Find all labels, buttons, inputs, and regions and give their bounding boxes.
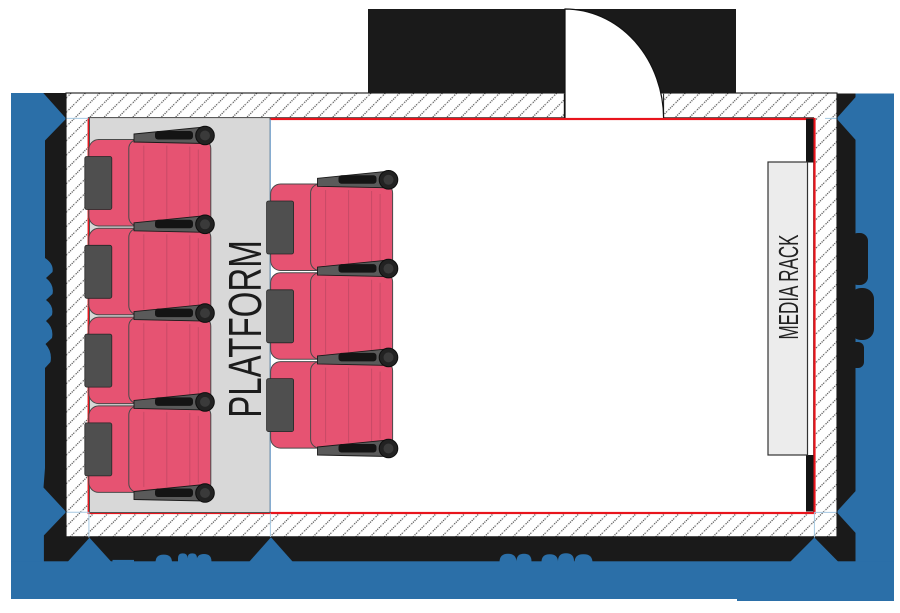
svg-text:PLATFORM: PLATFORM — [219, 240, 271, 418]
svg-text:MEDIA RACK: MEDIA RACK — [773, 234, 804, 339]
